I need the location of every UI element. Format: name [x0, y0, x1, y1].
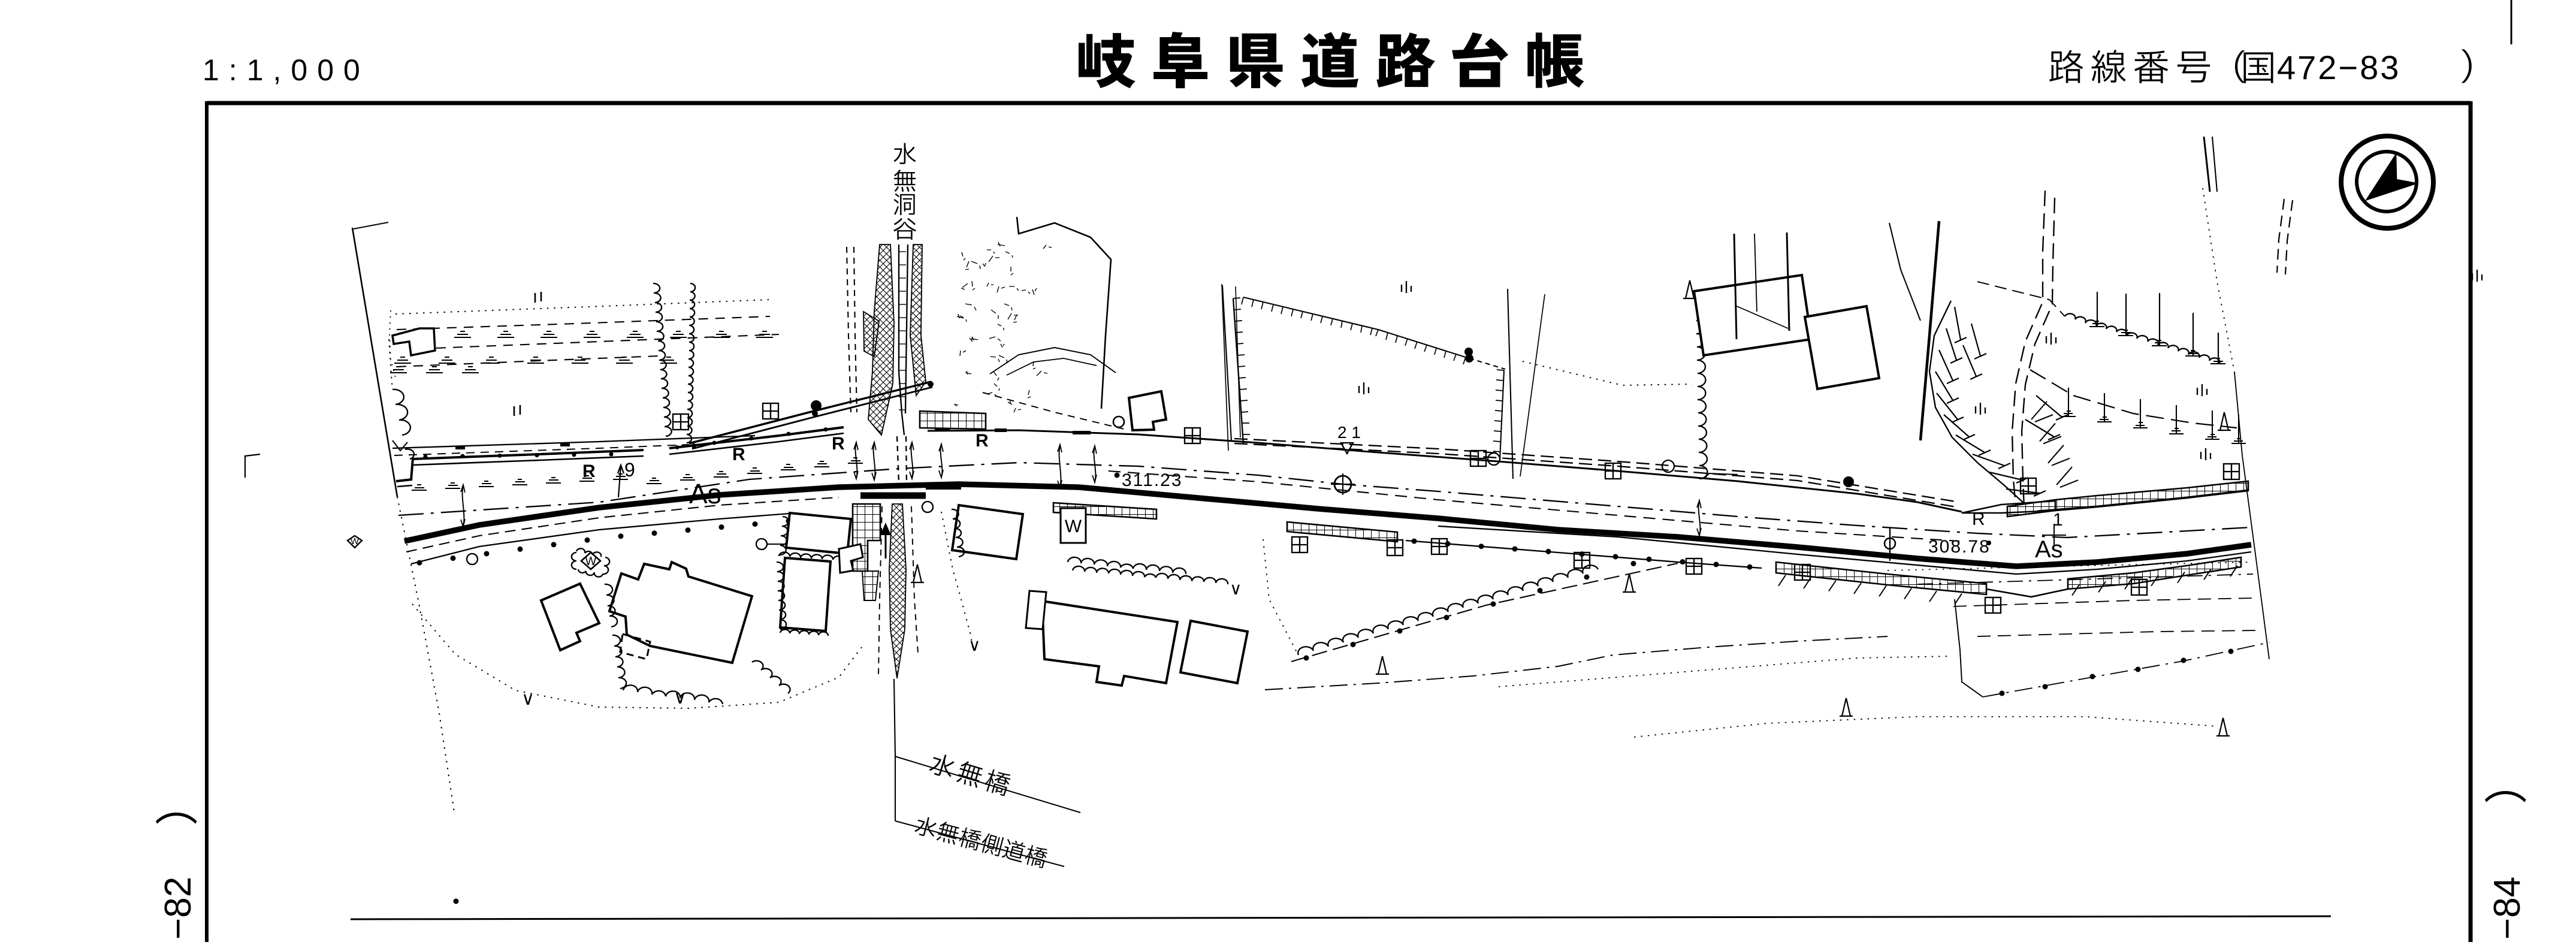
svg-text:W: W	[351, 536, 360, 547]
svg-text:R: R	[582, 461, 596, 481]
svg-text:∨: ∨	[1230, 579, 1242, 598]
svg-text:W: W	[585, 555, 597, 568]
svg-text:308.78: 308.78	[1928, 537, 1991, 557]
svg-text:∨: ∨	[674, 688, 687, 708]
svg-text:As: As	[689, 478, 721, 509]
svg-text:R: R	[976, 431, 989, 451]
svg-text:9: 9	[624, 459, 635, 481]
svg-text:−82: −82	[158, 877, 199, 940]
svg-text:∨: ∨	[968, 636, 981, 654]
svg-text:∨: ∨	[521, 689, 534, 709]
svg-text:）: ）	[2484, 761, 2532, 804]
svg-text:472−83: 472−83	[2277, 49, 2400, 86]
svg-text:1:1,000: 1:1,000	[203, 53, 370, 87]
svg-text:）: ）	[155, 783, 203, 826]
svg-text:R: R	[732, 445, 745, 464]
svg-text:R: R	[832, 434, 845, 454]
svg-text:2 1: 2 1	[1337, 423, 1361, 442]
svg-text:311.23: 311.23	[1122, 470, 1183, 490]
svg-text:−84: −84	[2487, 877, 2528, 940]
svg-text:As: As	[2035, 536, 2063, 563]
svg-text:R: R	[1972, 509, 1985, 529]
svg-text:W: W	[1065, 517, 1082, 536]
